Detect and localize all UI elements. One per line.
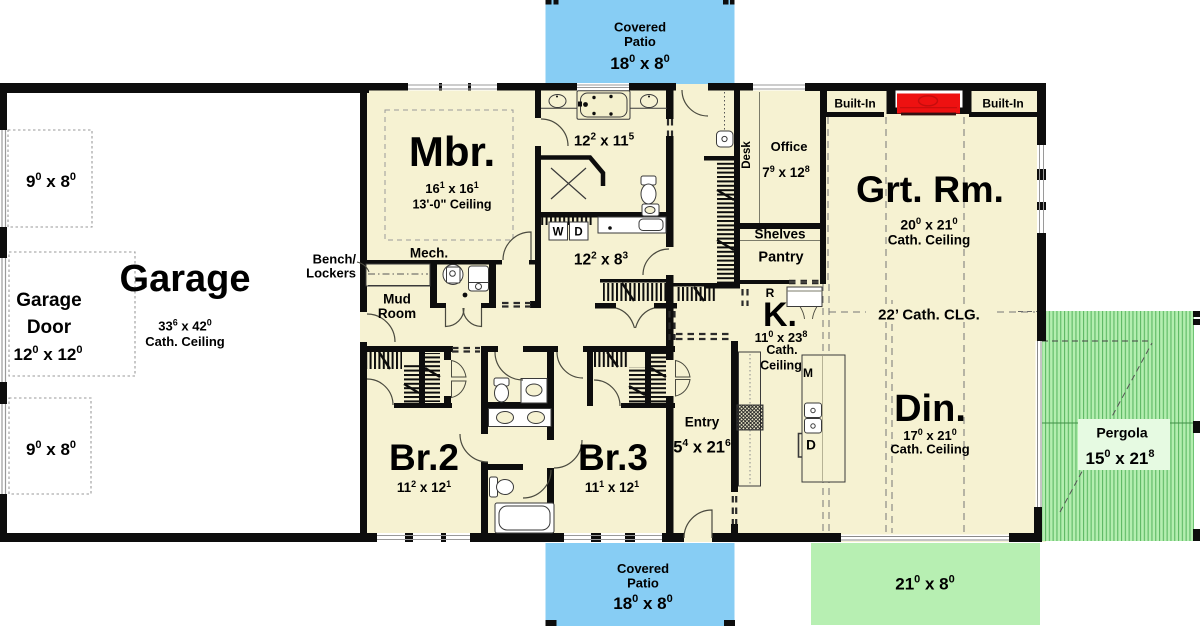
svg-text:Br.2: Br.2 — [389, 437, 459, 478]
svg-text:Mech.: Mech. — [410, 246, 448, 261]
svg-text:13'-0" Ceiling: 13'-0" Ceiling — [412, 198, 491, 212]
svg-text:Grt. Rm.: Grt. Rm. — [856, 168, 1004, 210]
svg-text:90 x 80: 90 x 80 — [26, 171, 76, 191]
svg-text:150 x 218: 150 x 218 — [1086, 448, 1155, 468]
svg-text:Cath. Ceiling: Cath. Ceiling — [888, 233, 971, 248]
svg-text:Ceiling: Ceiling — [760, 359, 802, 373]
svg-text:Mbr.: Mbr. — [409, 128, 495, 175]
svg-text:180 x 80: 180 x 80 — [613, 593, 673, 613]
svg-text:Cath.: Cath. — [766, 343, 797, 357]
svg-text:22’ Cath. CLG.: 22’ Cath. CLG. — [878, 307, 980, 324]
svg-text:Garage: Garage — [120, 258, 251, 300]
svg-text:Desk: Desk — [741, 141, 753, 169]
svg-text:Bench/: Bench/ — [313, 252, 357, 267]
svg-text:210 x 80: 210 x 80 — [895, 574, 955, 594]
svg-text:Din.: Din. — [894, 388, 966, 430]
svg-text:Lockers: Lockers — [306, 266, 356, 281]
svg-text:161 x 161: 161 x 161 — [425, 180, 478, 196]
svg-text:111 x 121: 111 x 121 — [585, 479, 639, 495]
svg-text:Patio: Patio — [624, 34, 656, 49]
svg-text:M: M — [803, 366, 813, 380]
svg-text:Entry: Entry — [685, 415, 720, 430]
svg-text:122 x 83: 122 x 83 — [574, 251, 629, 269]
svg-text:90 x 80: 90 x 80 — [26, 439, 76, 459]
svg-text:Garage: Garage — [16, 290, 81, 311]
svg-text:Patio: Patio — [627, 576, 659, 591]
svg-text:336 x 420: 336 x 420 — [158, 318, 211, 334]
svg-text:Built-In: Built-In — [834, 97, 875, 111]
svg-text:Cath. Ceiling: Cath. Ceiling — [145, 334, 225, 349]
svg-text:Covered: Covered — [617, 561, 669, 576]
svg-text:D: D — [574, 227, 582, 239]
svg-text:Pergola: Pergola — [1096, 425, 1148, 441]
svg-text:Shelves: Shelves — [754, 227, 805, 242]
svg-text:Office: Office — [771, 139, 808, 154]
svg-text:Br.3: Br.3 — [578, 437, 648, 478]
svg-text:Cath. Ceiling: Cath. Ceiling — [890, 442, 970, 457]
svg-text:Mud: Mud — [383, 292, 411, 307]
svg-text:120 x 120: 120 x 120 — [14, 344, 83, 364]
svg-text:122 x 115: 122 x 115 — [574, 132, 635, 150]
svg-text:W: W — [553, 227, 564, 239]
svg-text:Door: Door — [27, 317, 72, 338]
svg-text:Covered: Covered — [614, 20, 666, 35]
svg-text:Pantry: Pantry — [758, 250, 803, 266]
svg-text:79 x 128: 79 x 128 — [762, 164, 810, 180]
svg-text:Built-In: Built-In — [982, 97, 1023, 111]
svg-text:112 x 121: 112 x 121 — [397, 479, 451, 495]
svg-text:Room: Room — [378, 306, 416, 321]
svg-text:D: D — [806, 438, 816, 453]
svg-text:180 x 80: 180 x 80 — [610, 53, 670, 73]
svg-text:54 x 216: 54 x 216 — [673, 437, 731, 457]
svg-text:R: R — [766, 286, 775, 300]
svg-text:200 x 210: 200 x 210 — [900, 216, 957, 233]
